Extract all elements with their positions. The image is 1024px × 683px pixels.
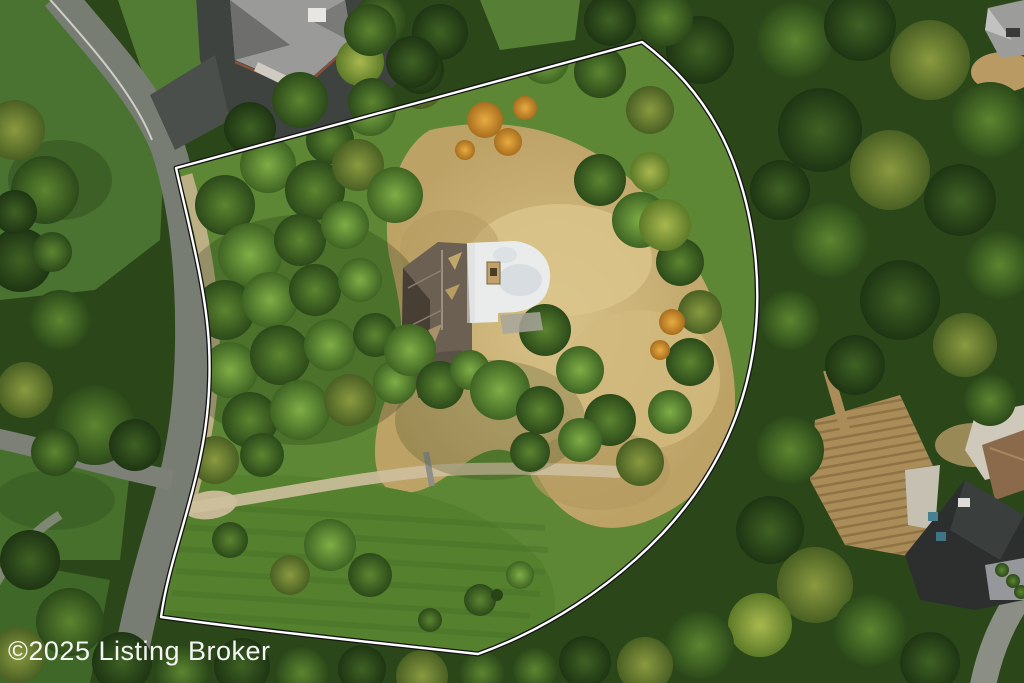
chimney [308, 8, 326, 22]
main-house-white-roof [467, 241, 550, 334]
aerial-photo: ©2025 Listing Broker [0, 0, 1024, 683]
skylight [936, 532, 946, 541]
chimney [958, 498, 970, 507]
skylight [928, 512, 938, 521]
watermark-text: ©2025 Listing Broker [8, 636, 271, 666]
